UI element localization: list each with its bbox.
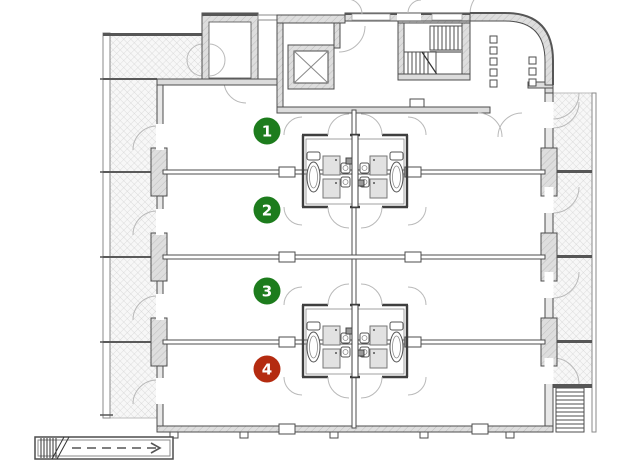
unit-2-badge[interactable]: 2 xyxy=(254,197,281,224)
unit-3-label: 3 xyxy=(262,283,272,301)
unit-1-badge[interactable]: 1 xyxy=(254,118,281,145)
entrance-ramp xyxy=(35,437,173,459)
floor-plan-canvas: 1 2 3 4 xyxy=(0,0,629,464)
balcony-railing xyxy=(592,93,596,432)
exterior-stair xyxy=(556,388,584,432)
unit-4-badge[interactable]: 4 xyxy=(254,356,281,383)
unit-2-label: 2 xyxy=(262,202,272,220)
window xyxy=(258,15,277,20)
floor-plan: 1 2 3 4 xyxy=(0,0,629,464)
unit-4-label: 4 xyxy=(262,361,272,379)
unit-1-label: 1 xyxy=(262,123,272,141)
elevator xyxy=(288,45,334,89)
terrace-railing xyxy=(103,33,110,418)
unit-3-badge[interactable]: 3 xyxy=(254,278,281,305)
